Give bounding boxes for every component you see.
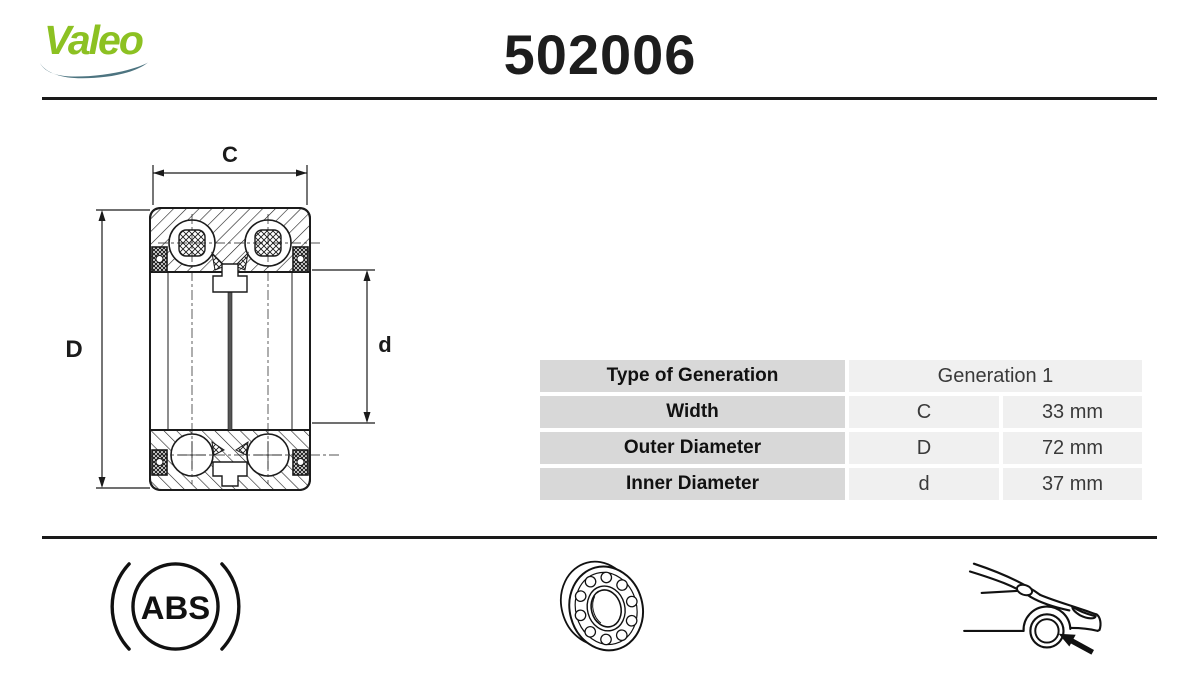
- spec-label-outer-diameter: Outer Diameter: [540, 432, 845, 464]
- ball-bearing-icon: [540, 549, 668, 667]
- dimension-d: [312, 270, 375, 423]
- spec-symbol-inner-diameter: d: [849, 468, 999, 500]
- abs-wheel-speed-icon: ABS: [103, 548, 248, 665]
- dimension-D: [96, 210, 150, 488]
- spec-table: Type of Generation Generation 1 Width C …: [540, 360, 1142, 500]
- product-spec-sheet: Valeo 502006: [0, 0, 1200, 675]
- spec-symbol-outer-diameter: D: [849, 432, 999, 464]
- dim-label-inner-diameter: d: [378, 332, 391, 357]
- top-divider: [42, 97, 1157, 100]
- table-row: Type of Generation Generation 1: [540, 360, 1142, 392]
- wheel-pointer-arrow: [1059, 634, 1093, 653]
- bottom-divider: [42, 536, 1157, 539]
- spec-label-generation: Type of Generation: [540, 360, 845, 392]
- bearing-body: [150, 208, 340, 490]
- spec-value-generation: Generation 1: [849, 360, 1142, 392]
- dimension-C: [153, 165, 307, 205]
- bearing-cross-section-drawing: C D d: [40, 128, 410, 513]
- table-row: Width C 33 mm: [540, 396, 1142, 428]
- part-number-title: 502006: [0, 22, 1200, 87]
- abs-icon-label: ABS: [141, 589, 210, 626]
- spec-value-inner-diameter: 37 mm: [1003, 468, 1142, 500]
- table-row: Inner Diameter d 37 mm: [540, 468, 1142, 500]
- spec-value-width: 33 mm: [1003, 396, 1142, 428]
- spec-value-outer-diameter: 72 mm: [1003, 432, 1142, 464]
- table-row: Outer Diameter D 72 mm: [540, 432, 1142, 464]
- dim-label-outer-diameter: D: [65, 336, 82, 363]
- spec-label-inner-diameter: Inner Diameter: [540, 468, 845, 500]
- car-front-wheel-icon: [950, 552, 1140, 664]
- spec-label-width: Width: [540, 396, 845, 428]
- spec-symbol-width: C: [849, 396, 999, 428]
- dim-label-width: C: [222, 142, 238, 167]
